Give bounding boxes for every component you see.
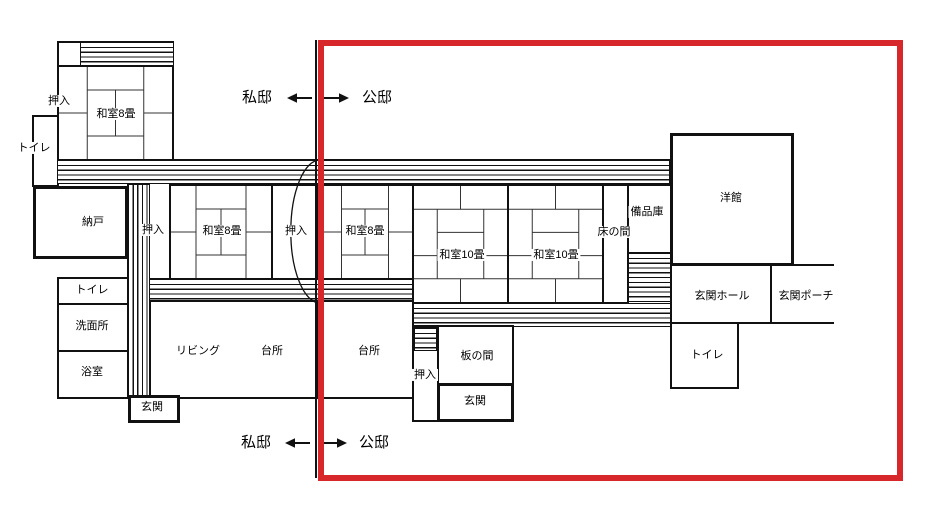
room-label-kitchen-1: 台所 [259, 345, 285, 357]
closet-box-top-left [57, 41, 82, 67]
boundary-label-private-bottom: 私邸 [239, 435, 273, 452]
room-label-oshiire-1: 押入 [140, 224, 166, 236]
room-label-washitsu8-1: 和室8畳 [200, 225, 243, 237]
room-label-toilet-nw: トイレ [16, 142, 53, 154]
closet-hatch-top [80, 41, 174, 67]
boundary-label-private-top: 私邸 [240, 90, 274, 107]
arrow-left-icon [285, 437, 311, 449]
room-label-oshiire-2: 押入 [283, 225, 309, 237]
room-label-toilet-w: トイレ [74, 284, 111, 296]
corridor-vertical-band [127, 184, 150, 397]
room-label-living: リビング [174, 345, 222, 357]
public-residence-highlight-frame [318, 40, 903, 481]
arrow-left-icon [287, 92, 313, 104]
room-label-senmenjo: 洗面所 [74, 320, 111, 332]
room-label-nando: 納戸 [80, 216, 106, 228]
private-public-divider-line [315, 40, 317, 478]
room-label-washitsu8-top: 和室8畳 [94, 108, 137, 120]
room-label-oshiire-top: 押入 [46, 95, 72, 107]
floor-plan: 押入 和室8畳 トイレ 納戸 押入 和室8畳 押入 和室8畳 和室10畳 和室1… [0, 0, 940, 514]
room-label-yokushitsu: 浴室 [79, 366, 105, 378]
room-label-genkan-upper: 玄関 [139, 401, 165, 413]
